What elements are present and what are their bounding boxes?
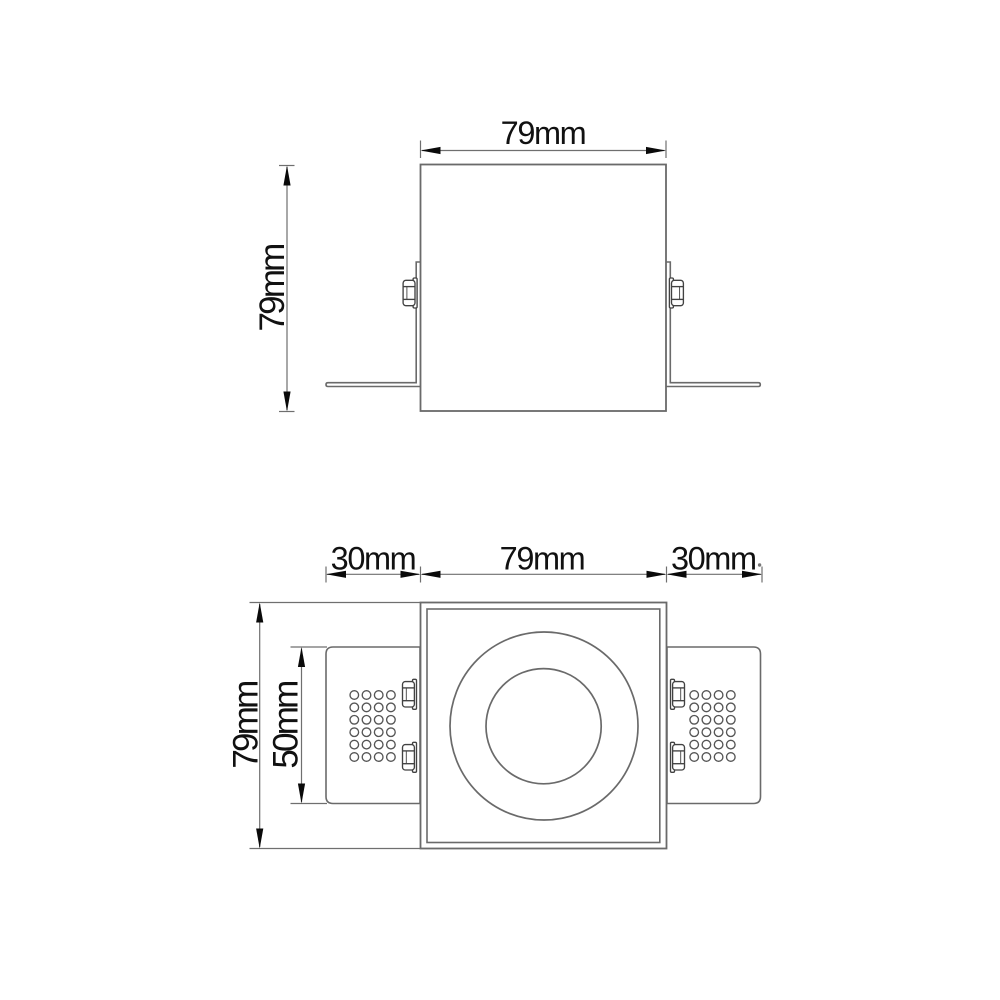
svg-text:30mm: 30mm: [331, 540, 416, 576]
svg-text:50mm: 50mm: [267, 682, 306, 769]
svg-text:79mm: 79mm: [226, 682, 265, 769]
svg-text:79mm: 79mm: [501, 115, 586, 151]
svg-text:79mm: 79mm: [500, 540, 585, 576]
svg-text:79mm: 79mm: [253, 245, 292, 332]
svg-text:30mm: 30mm: [671, 540, 756, 576]
